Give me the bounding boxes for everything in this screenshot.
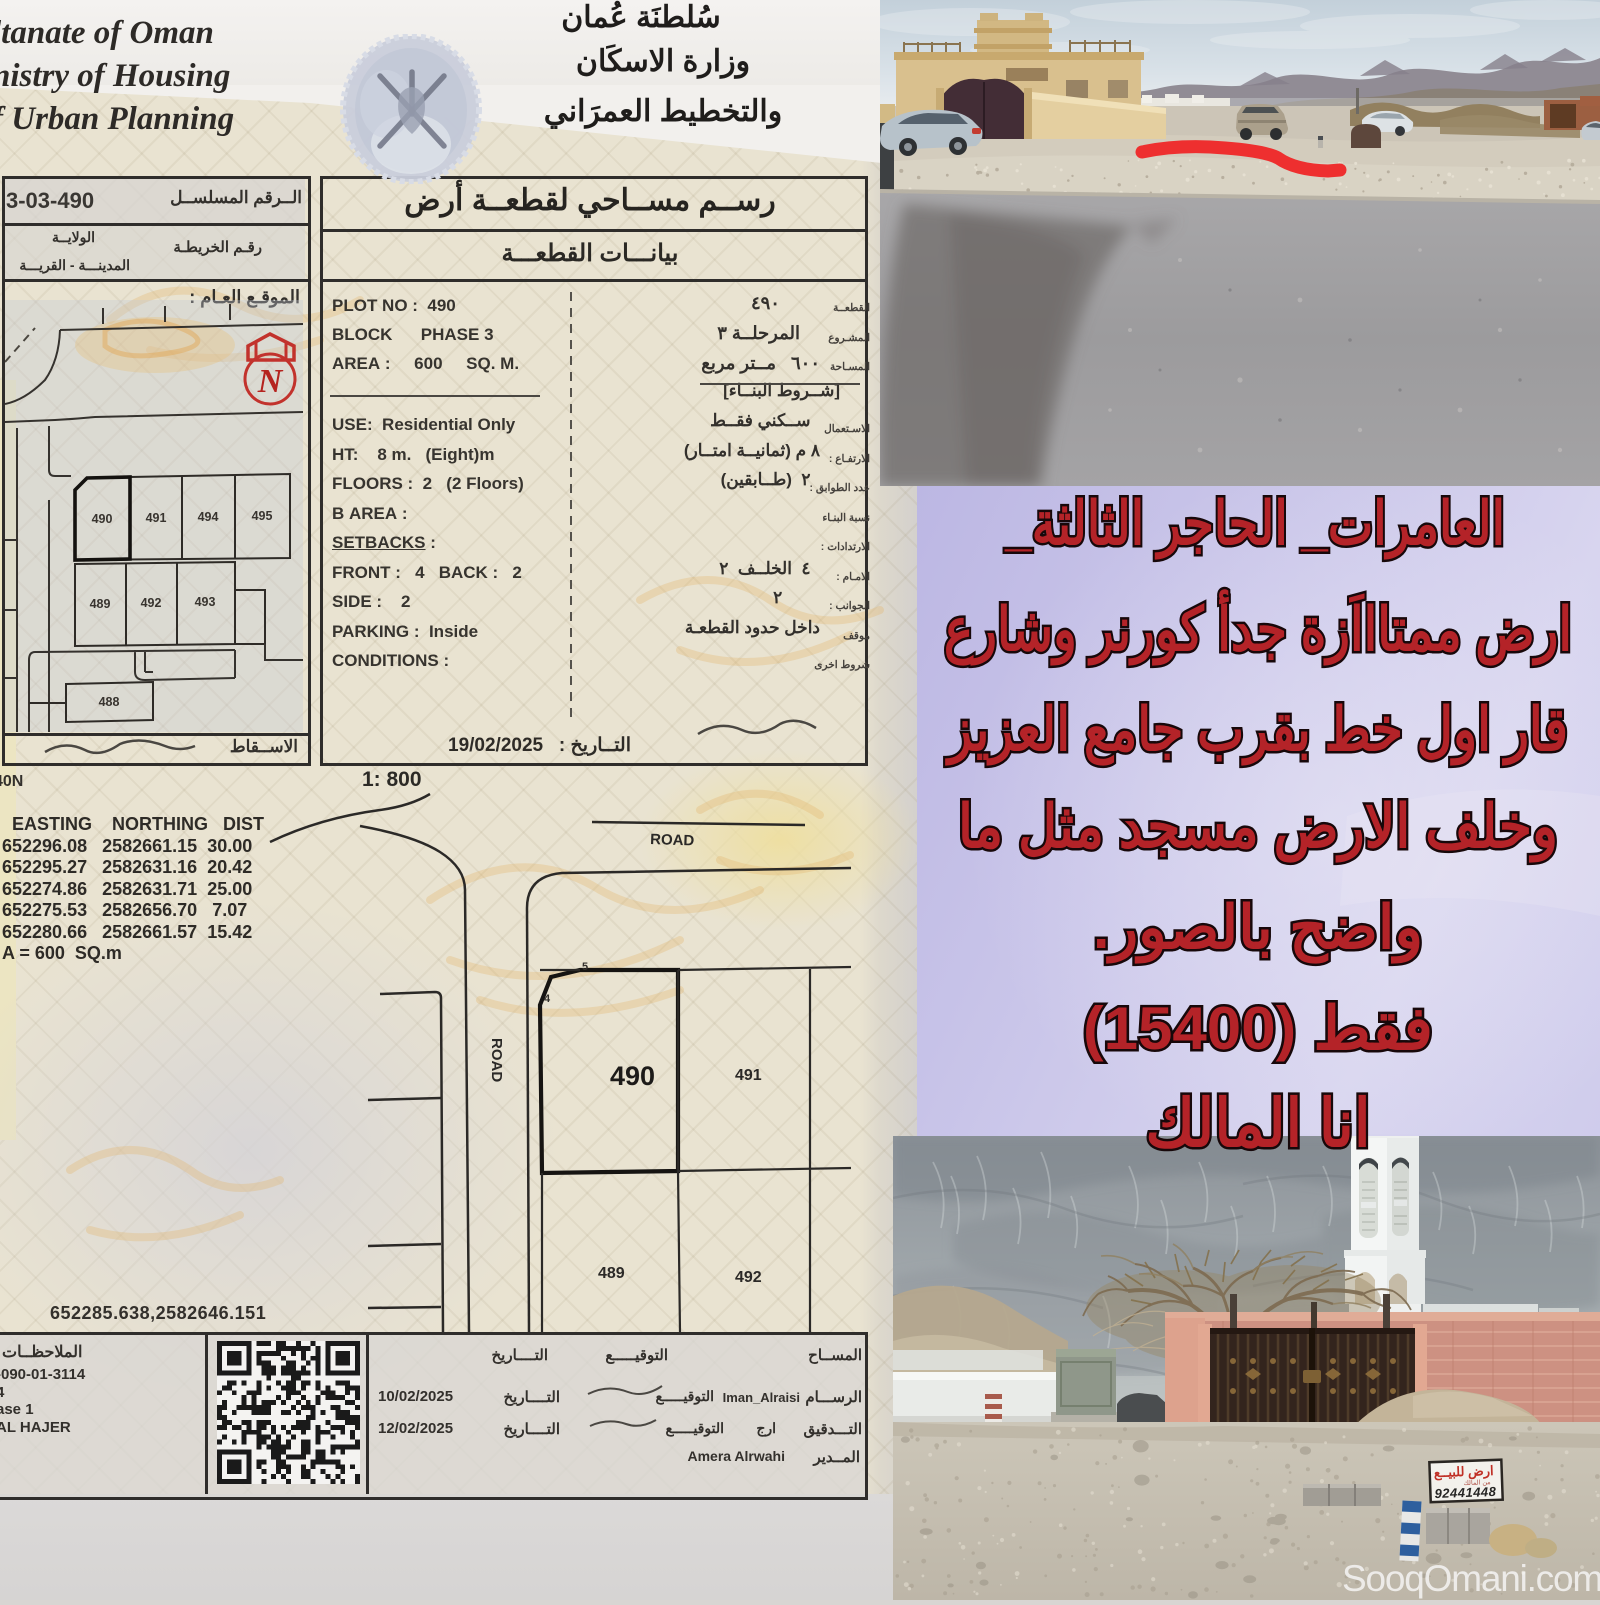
svg-text:انا المالك: انا المالك (1146, 1086, 1371, 1160)
svg-text:واضح بالصور.: واضح بالصور. (1093, 894, 1423, 964)
svg-text:493: 493 (195, 595, 216, 609)
svg-text:4: 4 (544, 993, 551, 1005)
svg-text:فقط (15400): فقط (15400) (1083, 995, 1433, 1062)
svg-text:قار اول خط بقرب جامع العزيز: قار اول خط بقرب جامع العزيز (945, 696, 1568, 766)
svg-text:5: 5 (582, 961, 588, 973)
svg-text:ROAD: ROAD (488, 1038, 505, 1082)
svg-text:ارض ممتاااَزة جدأ كورنر وشارع: ارض ممتاااَزة جدأ كورنر وشارع (944, 589, 1572, 666)
svg-text:495: 495 (252, 509, 273, 523)
svg-text:ROAD: ROAD (650, 831, 695, 850)
svg-text:491: 491 (146, 511, 167, 525)
svg-text:489: 489 (598, 1265, 625, 1282)
svg-text:N: N (257, 363, 284, 400)
svg-text:490: 490 (610, 1061, 655, 1091)
svg-text:489: 489 (90, 597, 111, 611)
svg-text:488: 488 (99, 695, 120, 709)
svg-text:492: 492 (735, 1269, 762, 1286)
svg-text:491: 491 (735, 1067, 762, 1084)
svg-text:494: 494 (198, 510, 219, 524)
svg-text:العامرات_ الحاجر الثالثة_: العامرات_ الحاجر الثالثة_ (1004, 490, 1505, 560)
svg-text:92441448: 92441448 (1434, 1484, 1497, 1501)
svg-text:وخلف الارض مسجد مثل ما: وخلف الارض مسجد مثل ما (958, 793, 1558, 863)
svg-text:490: 490 (92, 512, 113, 526)
svg-text:492: 492 (141, 596, 162, 610)
